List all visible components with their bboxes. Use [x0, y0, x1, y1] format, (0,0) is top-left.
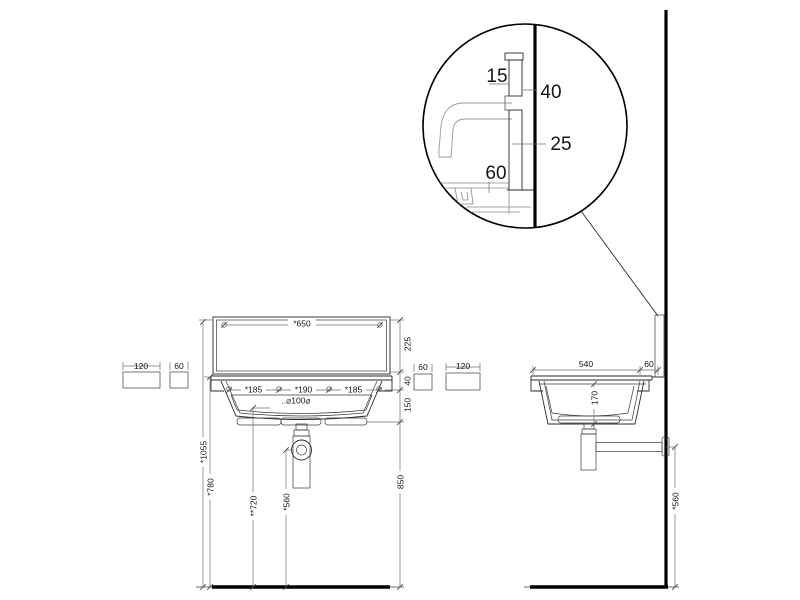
- dim-detail-40: 40: [540, 82, 561, 103]
- dim-drain-spacing: ..⌀100⌀: [281, 396, 310, 406]
- side-tick-marks: [530, 367, 678, 590]
- front-trap: [292, 424, 312, 488]
- side-view: 540 60 170 *560: [524, 315, 681, 590]
- dim-hole-spacing-1: *185: [245, 385, 263, 395]
- side-trap: [581, 424, 669, 470]
- front-labels: *650 *185 *190 *185 ..⌀100⌀ 120 60 60 12…: [134, 318, 470, 520]
- detail-leader-line: [581, 211, 658, 316]
- dim-height-1055: *1055: [199, 441, 209, 463]
- side-wall-plate: [655, 315, 664, 377]
- dim-box-right-60: 60: [418, 362, 428, 372]
- dim-box-left-60: 60: [174, 361, 184, 371]
- dim-hole-spacing-2: *190: [295, 385, 313, 395]
- dim-panel-225: 225: [403, 337, 413, 351]
- dim-height-560-front: *560: [282, 493, 292, 511]
- technical-drawing-page: 15 40 25 60: [0, 0, 800, 600]
- dim-height-780: *780: [206, 478, 216, 496]
- dim-detail-25: 25: [550, 134, 571, 155]
- dim-box-right-120: 120: [456, 361, 470, 371]
- washbasin-installation-drawing: 15 40 25 60: [0, 0, 800, 600]
- front-dimensions: [199, 320, 404, 587]
- front-tick-marks: [200, 317, 403, 590]
- dim-height-720: **720: [249, 495, 259, 516]
- dim-rim-40: 40: [403, 376, 413, 386]
- dim-side-60: 60: [644, 359, 654, 369]
- detail-view: 15 40 25 60: [423, 24, 658, 316]
- dim-hole-spacing-3: *185: [345, 385, 363, 395]
- dim-detail-60: 60: [485, 163, 506, 184]
- dim-bowl-150: 150: [403, 398, 413, 412]
- dim-detail-15: 15: [486, 66, 507, 87]
- dim-side-170: 170: [590, 391, 600, 405]
- side-dimensions: [533, 366, 675, 587]
- dim-box-left-120: 120: [134, 361, 148, 371]
- dim-side-560: *560: [671, 492, 681, 510]
- dim-front-width: *650: [293, 319, 311, 329]
- dim-height-850: 850: [396, 475, 406, 489]
- dim-side-540: 540: [579, 359, 593, 369]
- front-view: *650 *185 *190 *185 ..⌀100⌀ 120 60 60 12…: [123, 317, 480, 590]
